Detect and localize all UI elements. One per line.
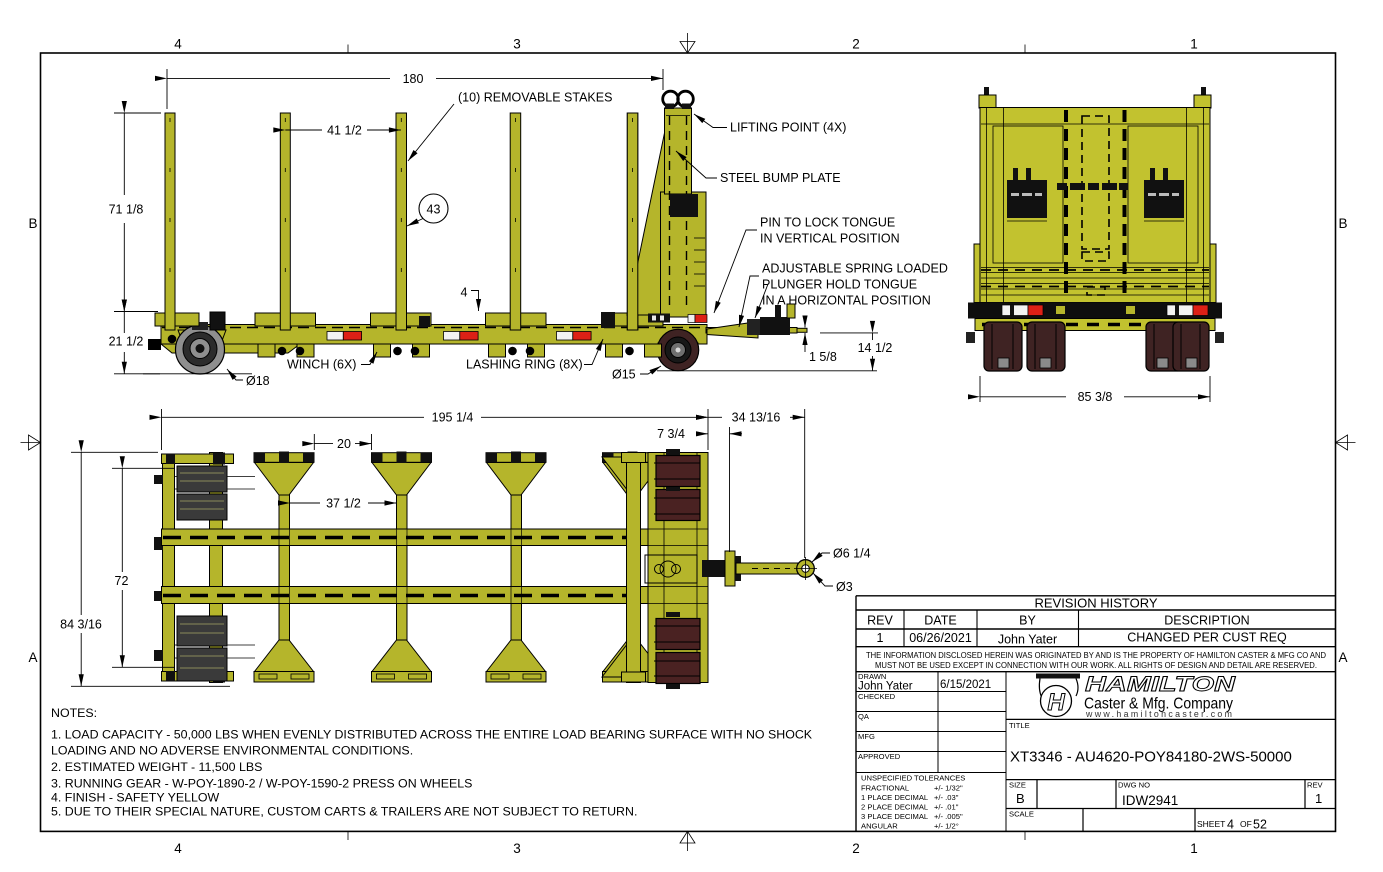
svg-text:TITLE: TITLE <box>1009 721 1030 730</box>
svg-text:THE INFORMATION DISCLOSED HERE: THE INFORMATION DISCLOSED HEREIN WAS ORI… <box>866 651 1326 660</box>
svg-text:IDW2941: IDW2941 <box>1122 793 1178 808</box>
svg-text:MUST NOT BE USED EXCEPT IN CON: MUST NOT BE USED EXCEPT IN CONNECTION WI… <box>875 661 1317 670</box>
svg-text:A: A <box>1338 650 1347 665</box>
svg-text:BY: BY <box>1019 614 1036 628</box>
svg-text:3: 3 <box>513 37 521 52</box>
svg-text:Ø3: Ø3 <box>836 580 853 594</box>
svg-text:1: 1 <box>1190 841 1198 856</box>
svg-text:1: 1 <box>1190 37 1198 52</box>
svg-text:34 13/16: 34 13/16 <box>732 411 781 425</box>
svg-text:+/- .005": +/- .005" <box>934 812 963 821</box>
svg-text:SHEET: SHEET <box>1197 819 1225 829</box>
svg-text:B: B <box>1016 791 1025 806</box>
svg-text:+/- .01": +/- .01" <box>934 803 959 812</box>
svg-text:85 3/8: 85 3/8 <box>1078 390 1113 404</box>
svg-text:IN A HORIZONTAL POSITION: IN A HORIZONTAL POSITION <box>762 294 931 308</box>
svg-text:195 1/4: 195 1/4 <box>432 411 474 425</box>
svg-text:4: 4 <box>174 37 182 52</box>
svg-text:1. LOAD CAPACITY - 50,000 LBS: 1. LOAD CAPACITY - 50,000 LBS WHEN EVENL… <box>51 728 813 742</box>
svg-text:06/26/2021: 06/26/2021 <box>909 631 972 645</box>
svg-text:1 PLACE DECIMAL: 1 PLACE DECIMAL <box>861 793 928 802</box>
svg-text:SIZE: SIZE <box>1009 781 1026 790</box>
svg-text:PLUNGER HOLD TONGUE: PLUNGER HOLD TONGUE <box>762 278 917 292</box>
svg-text:Ø18: Ø18 <box>246 374 270 388</box>
svg-text:DWG NO: DWG NO <box>1118 781 1150 790</box>
svg-text:72: 72 <box>115 574 129 588</box>
svg-text:REV: REV <box>1307 781 1324 790</box>
svg-text:John Yater: John Yater <box>858 681 913 693</box>
svg-text:43: 43 <box>427 203 441 217</box>
svg-text:A: A <box>28 650 37 665</box>
svg-text:3 PLACE DECIMAL: 3 PLACE DECIMAL <box>861 812 928 821</box>
svg-text:WINCH (6X): WINCH (6X) <box>287 358 356 372</box>
svg-text:ANGULAR: ANGULAR <box>861 822 898 831</box>
svg-text:71 1/8: 71 1/8 <box>109 203 144 217</box>
svg-text:CHANGED PER CUST REQ: CHANGED PER CUST REQ <box>1127 631 1287 645</box>
svg-text:2. ESTIMATED WEIGHT - 11,500 L: 2. ESTIMATED WEIGHT - 11,500 LBS <box>51 760 262 774</box>
svg-text:4: 4 <box>1227 818 1234 832</box>
svg-text:DESCRIPTION: DESCRIPTION <box>1164 614 1249 628</box>
svg-text:OF: OF <box>1240 819 1252 829</box>
svg-text:1: 1 <box>1315 791 1322 806</box>
svg-text:LASHING RING (8X): LASHING RING (8X) <box>466 358 583 372</box>
svg-text:14 1/2: 14 1/2 <box>858 341 893 355</box>
svg-text:+/- 1/2°: +/- 1/2° <box>934 822 959 831</box>
svg-text:MFG: MFG <box>858 732 875 741</box>
svg-text:H: H <box>1047 689 1065 716</box>
svg-text:QA: QA <box>858 712 870 721</box>
svg-text:HAMILTON: HAMILTON <box>1085 672 1236 696</box>
svg-text:IN VERTICAL POSITION: IN VERTICAL POSITION <box>760 232 900 246</box>
svg-text:ADJUSTABLE SPRING LOADED: ADJUSTABLE SPRING LOADED <box>762 262 948 276</box>
svg-text:+/- .03": +/- .03" <box>934 793 959 802</box>
svg-text:7 3/4: 7 3/4 <box>657 427 685 441</box>
svg-text:STEEL BUMP PLATE: STEEL BUMP PLATE <box>720 171 841 185</box>
svg-text:20: 20 <box>337 437 351 451</box>
svg-text:4: 4 <box>174 841 182 856</box>
svg-text:6/15/2021: 6/15/2021 <box>940 679 991 691</box>
svg-text:APPROVED: APPROVED <box>858 752 901 761</box>
svg-text:FRACTIONAL: FRACTIONAL <box>861 784 909 793</box>
svg-text:CHECKED: CHECKED <box>858 692 896 701</box>
svg-text:DATE: DATE <box>924 614 956 628</box>
svg-text:B: B <box>1338 216 1347 231</box>
svg-text:Ø15: Ø15 <box>612 368 636 382</box>
svg-text:Ø6 1/4: Ø6 1/4 <box>833 547 871 561</box>
svg-text:NOTES:: NOTES: <box>51 706 97 720</box>
svg-text:B: B <box>28 216 37 231</box>
svg-text:REVISION HISTORY: REVISION HISTORY <box>1034 596 1157 611</box>
svg-text:4. FINISH - SAFETY YELLOW: 4. FINISH - SAFETY YELLOW <box>51 791 220 805</box>
svg-text:LOADING AND NO ADVERSE ENVIRON: LOADING AND NO ADVERSE ENVIRONMENTAL CON… <box>51 743 413 757</box>
svg-text:41 1/2: 41 1/2 <box>327 123 362 137</box>
svg-text:SCALE: SCALE <box>1009 810 1034 819</box>
svg-text:UNSPECIFIED TOLERANCES: UNSPECIFIED TOLERANCES <box>861 774 965 783</box>
svg-text:1: 1 <box>877 631 884 645</box>
svg-text:4: 4 <box>461 286 468 300</box>
svg-text:XT3346 - AU4620-POY84180-2WS-5: XT3346 - AU4620-POY84180-2WS-50000 <box>1010 749 1292 766</box>
svg-text:3. RUNNING GEAR - W-POY-1890-2: 3. RUNNING GEAR - W-POY-1890-2 / W-POY-1… <box>51 777 472 791</box>
svg-text:John Yater: John Yater <box>998 633 1057 647</box>
svg-text:5. DUE TO THEIR SPECIAL NATURE: 5. DUE TO THEIR SPECIAL NATURE, CUSTOM C… <box>51 805 637 819</box>
svg-text:2: 2 <box>852 841 860 856</box>
svg-text:3: 3 <box>513 841 521 856</box>
svg-text:21 1/2: 21 1/2 <box>109 335 144 349</box>
svg-text:REV: REV <box>867 614 893 628</box>
svg-text:2: 2 <box>852 37 860 52</box>
svg-text:1 5/8: 1 5/8 <box>809 350 837 364</box>
svg-text:+/- 1/32": +/- 1/32" <box>934 784 963 793</box>
svg-text:180: 180 <box>403 72 424 86</box>
svg-text:84 3/16: 84 3/16 <box>60 617 102 631</box>
svg-text:LIFTING POINT (4X): LIFTING POINT (4X) <box>730 121 846 135</box>
svg-text:37 1/2: 37 1/2 <box>326 496 361 510</box>
svg-text:www.hamiltoncaster.com: www.hamiltoncaster.com <box>1085 709 1232 719</box>
svg-text:2 PLACE DECIMAL: 2 PLACE DECIMAL <box>861 803 928 812</box>
svg-text:PIN TO LOCK TONGUE: PIN TO LOCK TONGUE <box>760 216 895 230</box>
svg-text:52: 52 <box>1253 818 1267 832</box>
svg-text:(10) REMOVABLE STAKES: (10) REMOVABLE STAKES <box>458 91 612 105</box>
